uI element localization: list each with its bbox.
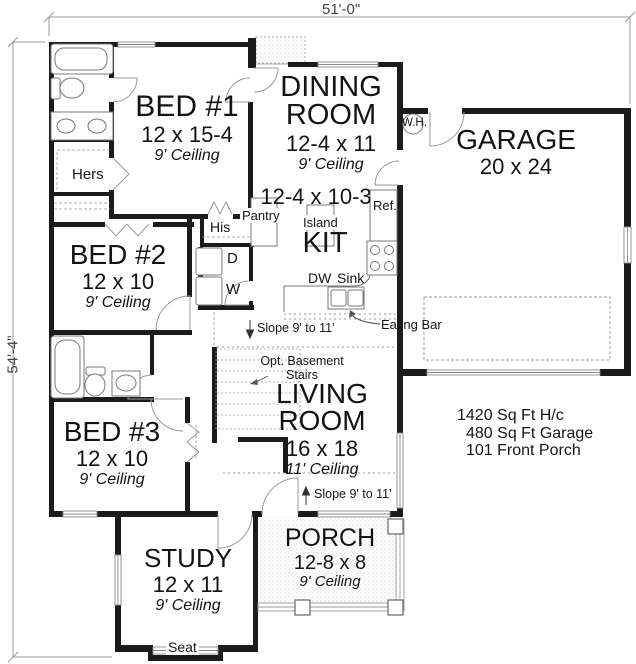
room-name: BED #3 — [64, 418, 161, 445]
window — [318, 511, 390, 517]
room-size: 12-4 x 11 — [256, 132, 406, 156]
toilet2 — [85, 367, 105, 396]
room-name: BED #1 — [135, 92, 238, 121]
water-heater-label: W.H. — [402, 117, 427, 129]
porch-column — [388, 519, 403, 534]
window — [115, 555, 121, 605]
room-name: DINING ROOM — [256, 73, 406, 130]
room-name: LIVING ROOM — [260, 380, 385, 435]
opt-basement-line2: Stairs — [260, 368, 343, 382]
bathtub — [51, 44, 113, 74]
room-label-garage: GARAGE 20 x 24 — [456, 126, 576, 179]
room-name: PORCH — [285, 526, 375, 551]
opt-basement-line1: Opt. Basement — [260, 354, 343, 368]
bathroom1-fixtures — [51, 44, 113, 140]
hall-closet-door — [105, 224, 149, 236]
room-size: 16 x 18 — [260, 437, 385, 461]
window — [118, 42, 155, 47]
room-size: 12 x 11 — [144, 573, 232, 597]
window — [397, 433, 403, 508]
sink2 — [112, 371, 140, 396]
fridge-label: Ref. — [373, 198, 397, 213]
room-ceiling: 9' Ceiling — [144, 597, 232, 615]
hers-closet-label: Hers — [72, 166, 104, 183]
room-ceiling: 9' Ceiling — [70, 294, 167, 312]
dishwasher-label: DW — [308, 270, 331, 286]
laundry-appliances — [196, 248, 222, 305]
room-ceiling: 9' Ceiling — [285, 574, 375, 591]
room-ceiling: 9' Ceiling — [135, 147, 238, 165]
garage-door — [424, 297, 610, 360]
kitchen-sink — [328, 287, 364, 309]
floor-plan: 51'-0" 54'-4" BED #1 12 x 15-4 9' Ceilin… — [0, 0, 636, 664]
room-label-living: LIVING ROOM 16 x 18 11' Ceiling — [260, 380, 385, 478]
slope-lower-label: Slope 9' to 11' — [314, 487, 392, 501]
kitchen-name: KIT — [302, 227, 347, 260]
garage-door-opening — [427, 370, 600, 375]
stat-heated-sqft: 1420 Sq Ft H/c — [457, 407, 564, 425]
room-name: STUDY — [144, 546, 232, 571]
room-ceiling: 9' Ceiling — [64, 471, 161, 489]
eating-bar-label: Eating Bar — [381, 317, 442, 332]
kitchen-size: 12-4 x 10-3 — [260, 184, 371, 210]
pantry-label: Pantry — [240, 208, 282, 223]
room-size: 12 x 10 — [64, 447, 161, 471]
room-name: GARAGE — [456, 126, 576, 153]
opt-basement-label: Opt. Basement Stairs — [260, 354, 343, 382]
vanity-sinks — [51, 112, 113, 140]
seat-label: Seat — [166, 639, 199, 655]
room-label-bed3: BED #3 12 x 10 9' Ceiling — [64, 418, 161, 489]
porch-column — [388, 600, 403, 615]
stat-porch-sqft: 101 Front Porch — [466, 442, 581, 460]
room-size: 12 x 10 — [70, 270, 167, 294]
slope-upper-label: Slope 9' to 11' — [257, 321, 335, 335]
bathtub2 — [51, 336, 84, 398]
sink-label: Sink — [337, 270, 364, 286]
island-label: Island — [301, 215, 340, 230]
bath1-door — [113, 78, 137, 102]
room-ceiling: 11' Ceiling — [260, 461, 385, 479]
room-label-bed1: BED #1 12 x 15-4 9' Ceiling — [135, 92, 238, 165]
window — [63, 511, 97, 517]
front-door — [262, 478, 298, 514]
washer-box — [196, 277, 222, 305]
room-ceiling: 9' Ceiling — [256, 156, 406, 174]
hers-closet-door — [113, 158, 129, 190]
bathroom2-fixtures — [51, 336, 140, 398]
his-closet-door — [208, 202, 232, 214]
stove — [367, 241, 397, 275]
room-label-porch: PORCH 12-8 x 8 9' Ceiling — [285, 526, 375, 591]
stat-garage-sqft: 480 Sq Ft Garage — [466, 425, 593, 443]
dryer-label: D — [227, 250, 238, 267]
porch-column — [295, 600, 310, 615]
room-size: 12-8 x 8 — [285, 553, 375, 575]
room-label-bed2: BED #2 12 x 10 9' Ceiling — [70, 241, 167, 312]
room-size: 20 x 24 — [456, 155, 576, 179]
his-closet-label: His — [210, 219, 230, 235]
dimension-height-label: 54'-4" — [5, 325, 22, 385]
window — [318, 62, 378, 67]
bed3-closet-door — [187, 423, 199, 462]
window — [624, 227, 631, 263]
room-label-study: STUDY 12 x 11 9' Ceiling — [144, 546, 232, 615]
dimension-width-label: 51'-0" — [322, 1, 360, 18]
entry-niche — [256, 37, 305, 63]
room-size: 12 x 15-4 — [135, 123, 238, 147]
room-label-dining: DINING ROOM 12-4 x 11 9' Ceiling — [256, 73, 406, 173]
toilet — [51, 78, 84, 99]
washer-label: W — [226, 281, 240, 298]
dryer-box — [196, 248, 222, 275]
room-name: BED #2 — [70, 241, 167, 268]
